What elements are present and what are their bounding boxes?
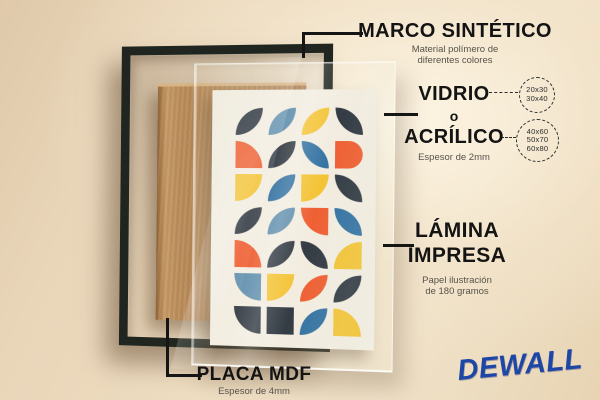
lamina-description: Papel ilustración de 180 gramos [388, 275, 526, 297]
marco-title: MARCO SINTÉTICO [352, 21, 558, 41]
vidrio-title: VIDRIO [396, 84, 512, 104]
wall-background: MARCO SINTÉTICO Material polímero de dif… [0, 0, 600, 400]
vidrio-acrilico-annotation: VIDRIO o ACRÍLICO Espesor de 2mm [396, 84, 512, 163]
frame-exploded-view [98, 35, 415, 379]
marco-description: Material polímero de diferentes colores [352, 44, 558, 66]
vidrio-o-word: o [396, 109, 512, 123]
size-60x80: 60x80 [527, 145, 549, 154]
placa-description: Espesor de 4mm [190, 386, 318, 397]
marco-connector-line-vertical [302, 32, 305, 58]
size-badge-large: 40x60 50x70 60x80 [516, 119, 559, 162]
size-badge-small: 20x30 30x40 [519, 77, 555, 113]
placa-connector-line-vertical [166, 318, 169, 377]
glass-panel [191, 61, 396, 372]
placa-title: PLACA MDF [190, 365, 318, 384]
acrilico-title: ACRÍLICO [396, 127, 512, 147]
lamina-title: LÁMINA IMPRESA [388, 219, 526, 269]
vidrio-description: Espesor de 2mm [396, 152, 512, 163]
dewall-logo: DEWALL [443, 342, 597, 389]
size-30x40: 30x40 [526, 95, 548, 104]
lamina-annotation: LÁMINA IMPRESA Papel ilustración de 180 … [388, 219, 526, 297]
placa-annotation: PLACA MDF Espesor de 4mm [190, 365, 318, 397]
marco-annotation: MARCO SINTÉTICO Material polímero de dif… [352, 21, 558, 66]
